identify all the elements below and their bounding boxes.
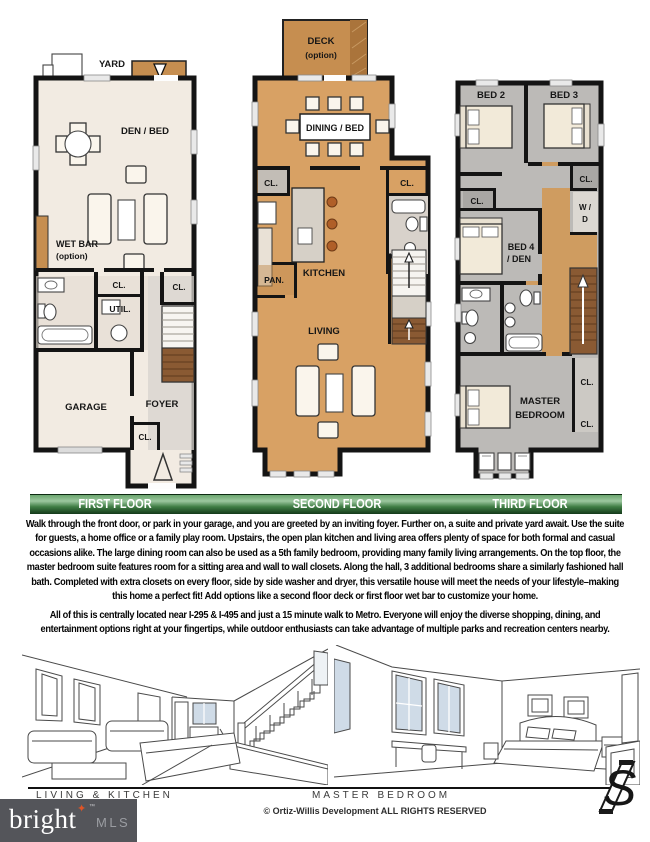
second-floor-staircase <box>392 250 426 344</box>
closet-hall-label: CL. <box>113 281 126 290</box>
third-floor-bar-label: THIRD FLOOR <box>492 497 567 511</box>
star-icon: ✦ <box>77 802 86 815</box>
bright-mls-logo: bright ✦ ™ MLS <box>0 799 137 842</box>
sofa-sketch <box>28 731 96 763</box>
washer-dryer-label-1: W / <box>579 203 592 212</box>
dining-label: DINING / BED <box>306 123 365 133</box>
bed2-furniture <box>460 106 512 148</box>
first-floor-plan: YARD DEN / BED <box>28 50 203 492</box>
hall-landing-fill <box>570 234 597 268</box>
washer-dryer-label-2: D <box>582 215 588 224</box>
toilet-icon <box>520 290 532 306</box>
sink-icon <box>470 290 482 298</box>
yard-label: YARD <box>99 59 125 70</box>
bed-sketch <box>494 741 604 771</box>
washer-icon <box>111 325 127 341</box>
living-kitchen-rendering <box>22 645 328 785</box>
pantry-label: PAN. <box>264 275 284 285</box>
bed3-label: BED 3 <box>550 90 578 101</box>
master-bedroom-caption: MASTER BEDROOM <box>312 790 450 801</box>
stool-icon <box>327 219 337 229</box>
bathtub-icon <box>392 200 425 213</box>
toilet-icon <box>44 304 56 320</box>
stool-icon <box>327 241 337 251</box>
description-paragraph-2: All of this is centrally located near I-… <box>25 608 625 637</box>
closet-stairs-label: CL. <box>173 283 186 292</box>
toilet-icon <box>466 310 478 326</box>
porch-steps <box>180 454 192 472</box>
closet-master-label-2: CL. <box>581 420 594 429</box>
living-label: LIVING <box>308 326 340 337</box>
second-floor-plan: DECK (option) <box>240 12 436 492</box>
bay-window-bench <box>479 453 530 470</box>
description-paragraph-1: Walk through the front door, or park in … <box>25 517 625 603</box>
master-label-2: BEDROOM <box>515 410 565 421</box>
garage-label: GARAGE <box>65 402 107 413</box>
bed4-label-1: BED 4 <box>508 242 535 252</box>
foyer-label: FOYER <box>146 399 179 410</box>
washer-dryer-fill <box>573 192 598 232</box>
utility-label: UTIL. <box>109 304 130 314</box>
living-room-sketch <box>22 649 328 785</box>
copyright-text: © Ortiz-Willis Development ALL RIGHTS RE… <box>230 806 520 816</box>
first-floor-bar-label: FIRST FLOOR <box>78 497 151 511</box>
yard-storage-box <box>43 54 82 79</box>
first-floor-staircase <box>162 306 194 382</box>
second-floor-bar-label: SECOND FLOOR <box>293 497 382 511</box>
developer-monogram-logo: S <box>592 758 644 818</box>
fridge-icon <box>258 202 276 224</box>
door-icon <box>622 673 638 743</box>
bed4-label-2: / DEN <box>507 254 531 264</box>
master-label-1: MASTER <box>520 396 560 407</box>
den-bed-label: DEN / BED <box>121 126 169 137</box>
sink-icon <box>45 281 57 289</box>
third-floor-plan: BED 2 BED 3 CL. W / D CL. BED 4 / DEN <box>446 58 618 492</box>
wet-bar-option-label: (option) <box>56 251 88 261</box>
deck-option-label: (option) <box>305 50 337 60</box>
chair-sketch <box>422 745 436 762</box>
footer-rule <box>28 787 612 789</box>
third-floor-staircase <box>570 268 597 354</box>
toilet-icon <box>406 217 418 231</box>
kitchen-island <box>292 188 324 262</box>
window-icon <box>314 651 328 685</box>
stool-icon <box>327 197 337 207</box>
nightstand-sketch <box>484 743 498 759</box>
deck-label: DECK <box>308 36 335 47</box>
floor-labels-bar: FIRST FLOOR SECOND FLOOR THIRD FLOOR <box>30 494 622 514</box>
closet-foyer-label: CL. <box>139 433 152 442</box>
hallway-fill <box>542 188 570 356</box>
deck: DECK (option) <box>283 20 367 78</box>
closet-left-label: CL. <box>264 178 278 188</box>
monogram-letter: S <box>603 760 636 816</box>
closet-top-label: CL. <box>580 175 593 184</box>
flyer-page: YARD DEN / BED <box>0 0 650 842</box>
trademark-symbol: ™ <box>89 804 95 810</box>
window-icon <box>334 659 350 733</box>
door-icon <box>175 702 188 743</box>
half-wall-sketch <box>230 741 328 785</box>
closet-master-label-1: CL. <box>581 378 594 387</box>
bed2-label: BED 2 <box>477 90 505 101</box>
master-bed-furniture <box>460 386 510 428</box>
bed3-furniture <box>544 104 590 148</box>
bright-logo-word: bright <box>9 804 77 835</box>
mls-logo-suffix: MLS <box>96 815 130 830</box>
wet-bar-label: WET BAR <box>56 239 98 249</box>
wet-bar-counter <box>36 216 48 270</box>
pillow-sketch <box>526 727 550 739</box>
kitchen-label: KITCHEN <box>303 268 345 279</box>
closet-bed4-label: CL. <box>471 197 484 206</box>
coffee-table-sketch <box>52 763 126 779</box>
closet-right-label: CL. <box>400 178 414 188</box>
bed4-furniture <box>460 218 502 274</box>
pillow-sketch <box>552 729 576 740</box>
